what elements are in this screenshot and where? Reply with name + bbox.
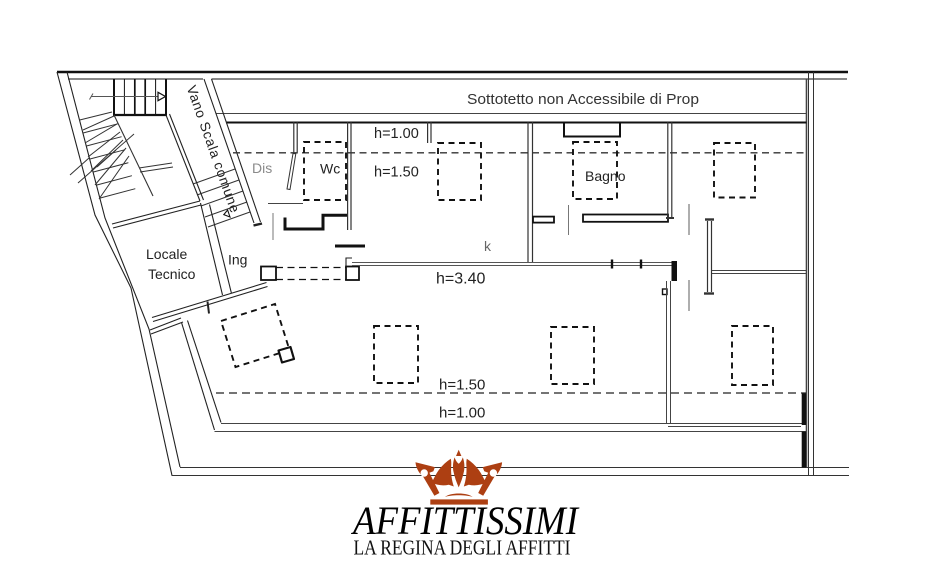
svg-text:Sottotetto non Accessibile di: Sottotetto non Accessibile di Prop: [467, 92, 699, 108]
svg-text:Ing: Ing: [228, 252, 247, 268]
svg-text:Tecnico: Tecnico: [148, 266, 196, 282]
svg-text:Locale: Locale: [146, 246, 187, 262]
svg-text:h=1.00: h=1.00: [374, 126, 419, 142]
svg-text:h=3.40: h=3.40: [436, 271, 485, 288]
svg-text:Bagno: Bagno: [585, 168, 626, 184]
svg-text:Wc: Wc: [320, 161, 340, 177]
svg-text:LA REGINA DEGLI AFFITTI: LA REGINA DEGLI AFFITTI: [354, 536, 571, 560]
svg-text:k: k: [484, 238, 492, 254]
svg-text:h=1.50: h=1.50: [439, 377, 485, 394]
svg-text:h=1.50: h=1.50: [374, 165, 419, 181]
svg-text:h=1.00: h=1.00: [439, 405, 485, 422]
svg-text:Dis: Dis: [252, 160, 272, 176]
